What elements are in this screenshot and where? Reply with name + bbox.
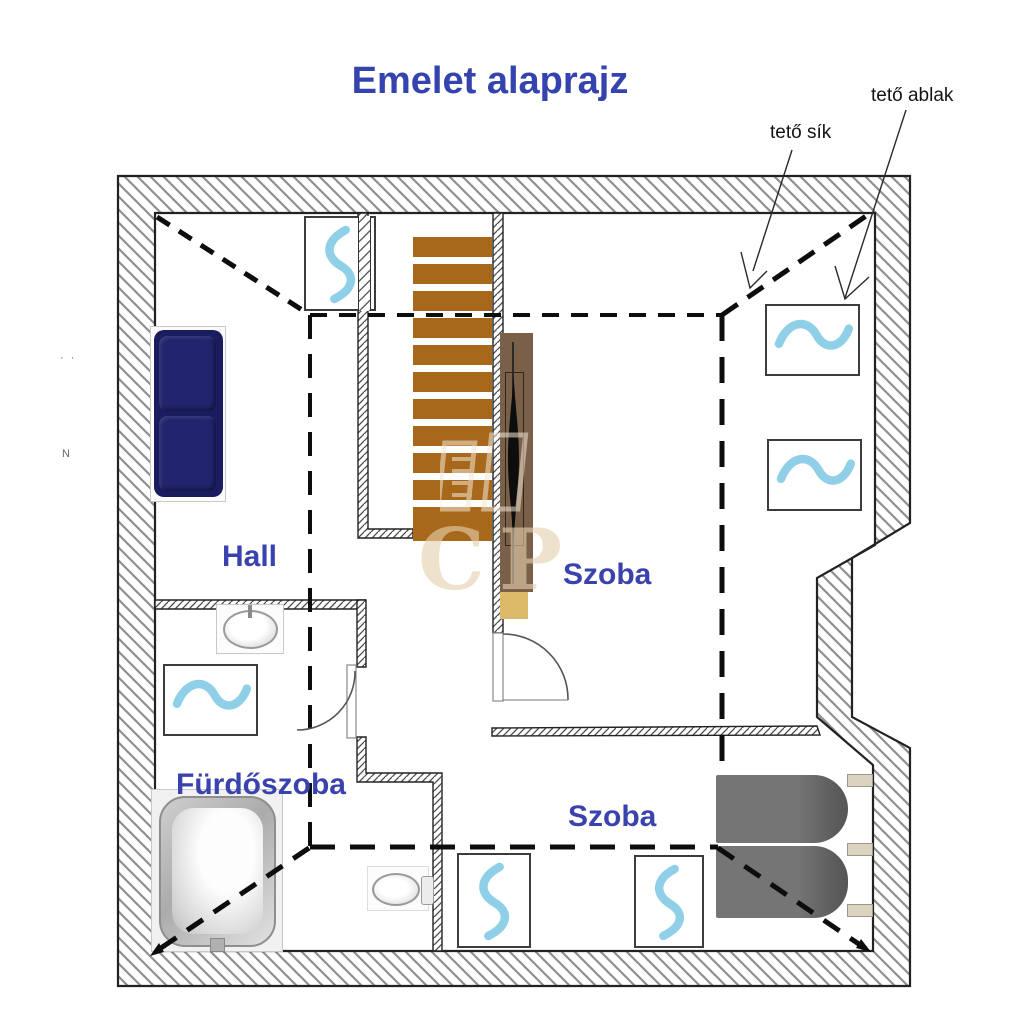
roof-plane-leader-line — [753, 150, 792, 271]
stair-door-arc — [503, 634, 568, 700]
room-label-hall: Hall — [222, 540, 277, 574]
room-label-lower-room: Szoba — [568, 800, 656, 834]
page-title: Emelet alaprajz — [290, 60, 690, 103]
bathroom-door-arc — [297, 671, 355, 730]
roof-window-label: tető ablak — [871, 85, 953, 107]
margin-mark-bottom: N — [62, 448, 72, 460]
stair-door-leaf — [493, 633, 503, 701]
roof-line-bed-diagonal — [718, 848, 869, 951]
roof-window-leader-line — [845, 110, 906, 298]
overlay-layer — [0, 0, 1017, 1024]
roof-plane-label: tető sík — [770, 122, 831, 144]
roof-line-bathtub-diagonal — [152, 848, 309, 954]
room-label-bathroom: Fürdőszoba — [176, 768, 346, 802]
room-label-upper-room: Szoba — [563, 558, 651, 592]
floorplan-page: CP Emelet alaprajz tető sík tető ablak H… — [0, 0, 1017, 1024]
roof-window-arrow-icon — [835, 266, 869, 299]
margin-mark-top: · · — [60, 352, 76, 364]
